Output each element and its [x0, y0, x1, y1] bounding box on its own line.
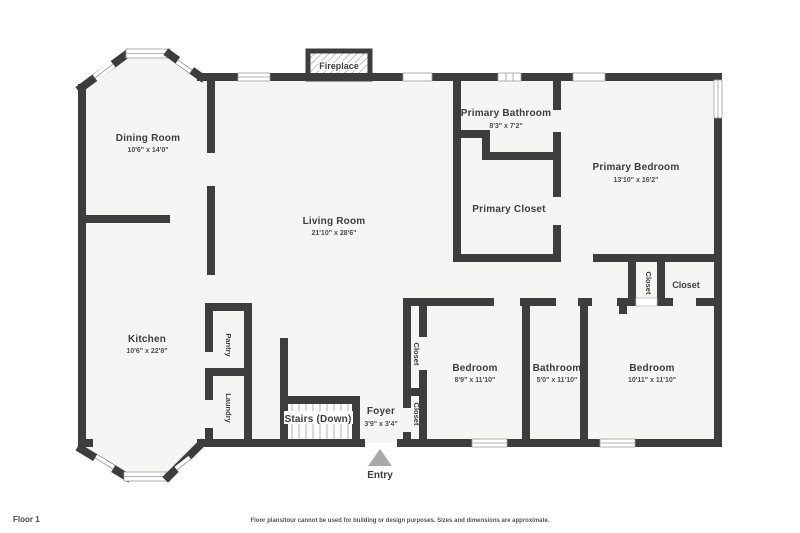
- floorplan-page: Fireplace: [0, 0, 800, 533]
- room-label-bedroom2: Bedroom: [629, 363, 674, 374]
- entry-marker: Entry: [367, 449, 393, 481]
- room-label-stairs: Stairs (Down): [284, 414, 351, 425]
- room-label-hall-bathroom: Bathroom: [533, 363, 582, 374]
- room-label-dining: Dining Room: [116, 133, 180, 144]
- stairs: Stairs (Down): [284, 404, 353, 439]
- floor-area: [82, 53, 718, 478]
- fireplace-label: Fireplace: [319, 61, 359, 71]
- room-label-foyer: Foyer: [367, 406, 395, 417]
- room-dims-primary-bedroom: 13'10" x 16'2": [613, 177, 658, 184]
- room-dims-primary-bathroom: 8'3" x 7'2": [489, 123, 522, 130]
- room-label-closet-hall-small: Closet: [644, 272, 653, 295]
- room-label-bedroom1: Bedroom: [452, 363, 497, 374]
- entry-arrow-icon: [368, 449, 392, 466]
- room-label-pantry: Pantry: [224, 333, 233, 357]
- room-dims-bedroom1: 8'9" x 11'10": [455, 377, 496, 384]
- room-dims-dining: 10'6" x 14'0": [127, 147, 168, 154]
- room-label-kitchen: Kitchen: [128, 334, 166, 345]
- room-label-living: Living Room: [303, 216, 366, 227]
- room-dims-kitchen: 10'6" x 22'8": [126, 348, 167, 355]
- floorplan-drawing: Fireplace: [0, 0, 800, 533]
- room-dims-living: 21'10" x 28'6": [311, 230, 356, 237]
- room-label-closet-bedroom1: Closet: [412, 343, 421, 366]
- room-label-closet-foyer: Closet: [412, 403, 421, 426]
- room-label-laundry: Laundry: [224, 393, 233, 423]
- floor-label: Floor 1: [13, 515, 40, 524]
- room-label-primary-closet: Primary Closet: [472, 204, 546, 215]
- disclaimer-text: Floor plans/tour cannot be used for buil…: [250, 518, 549, 524]
- room-label-primary-bedroom: Primary Bedroom: [593, 162, 680, 173]
- room-label-closet-hall-large: Closet: [672, 280, 700, 290]
- room-dims-hall-bathroom: 5'0" x 11'10": [537, 377, 578, 384]
- room-label-primary-bathroom: Primary Bathroom: [461, 108, 551, 119]
- entry-label: Entry: [367, 470, 393, 481]
- room-dims-bedroom2: 10'11" x 11'10": [628, 377, 676, 384]
- room-dims-foyer: 3'9" x 3'4": [364, 421, 397, 428]
